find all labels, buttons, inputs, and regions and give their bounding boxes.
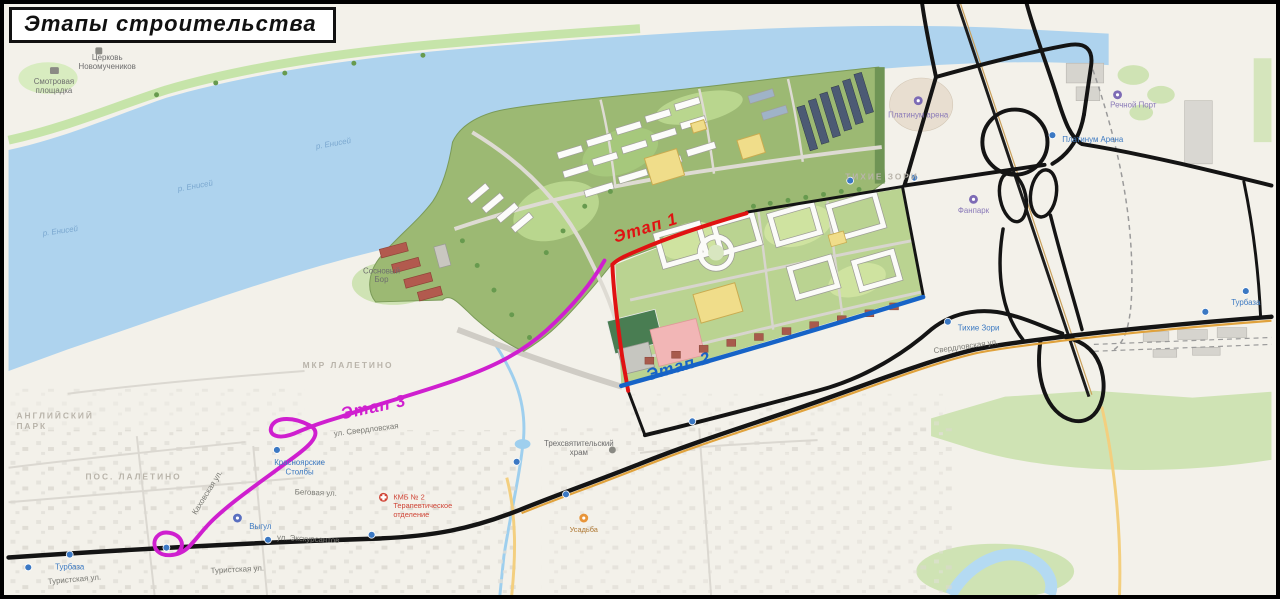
vygul-poi-icon <box>233 514 242 523</box>
transit-stop-icon <box>1049 132 1056 139</box>
transit-stop-icon <box>513 458 520 465</box>
stolby-stop-label: Красноярские <box>274 458 325 467</box>
arena-poi-label: Платинум арена <box>888 110 949 119</box>
transit-stop-icon <box>25 564 32 571</box>
rechnoy-port-poi-icon <box>1113 90 1122 99</box>
transit-stop-icon <box>265 536 272 543</box>
street-label-begovaya: Беговая ул. <box>295 487 337 497</box>
map-frame: Этапы строительства <box>0 0 1280 599</box>
viewpoint-poi-icon <box>50 67 59 74</box>
sosnovy-label: Бор <box>375 275 390 284</box>
church-label: Церковь <box>92 53 123 62</box>
transit-stop-icon <box>563 491 570 498</box>
viewpoint-label: площадка <box>36 86 73 95</box>
district-label-mkr-laletino: МКР ЛАЛЕТИНО <box>303 360 394 370</box>
temple-label: Трехсвятительский <box>544 439 614 448</box>
stolby-stop-label: Столбы <box>286 468 315 477</box>
transit-stop-icon <box>368 531 375 538</box>
transit-stop-icon <box>66 551 73 558</box>
church-label: Новомучеников <box>79 62 136 71</box>
hospital-poi-icon <box>379 493 388 502</box>
transit-stop-icon <box>944 318 951 325</box>
fanpark-poi-icon <box>969 195 978 204</box>
vygul-label: Выгул <box>249 522 272 531</box>
district-label-english-park: ПАРК <box>16 421 47 431</box>
fanpark-label: Фанпарк <box>958 206 990 215</box>
usadba-label: Усадьба <box>570 525 599 534</box>
district-label-pos-laletino: ПОС. ЛАЛЕТИНО <box>86 472 182 482</box>
transit-stop-icon <box>1202 308 1209 315</box>
map-title: Этапы строительства <box>24 11 317 36</box>
hospital-label: Терапевтическое <box>393 501 452 510</box>
transit-stop-icon <box>273 447 280 454</box>
viewpoint-label: Смотровая <box>34 77 74 86</box>
transit-stop-icon <box>1242 288 1249 295</box>
rechnoy-port-label: Речной Порт <box>1110 101 1157 110</box>
green-patch <box>1254 58 1272 142</box>
hospital-label: отделение <box>393 510 429 519</box>
stage3-label: Этап 3 <box>339 391 408 423</box>
district-label-english-park: АНГЛИЙСКИЙ <box>16 409 93 420</box>
arena-stop-label: Платинум Арена <box>1062 135 1124 144</box>
courtyard <box>708 245 724 261</box>
transit-stop-icon <box>163 544 170 551</box>
district-label-tikhie-zori: ТИХИЕ ЗОРИ <box>845 172 919 182</box>
turbaza-right-label: Турбаза <box>1231 298 1261 307</box>
map-title-box: Этапы строительства <box>9 7 336 43</box>
arena-poi-icon <box>914 96 923 105</box>
map-canvas: Этап 1 Этап 2 Этап 3 <box>4 4 1276 595</box>
tikhie-zori-stop-label: Тихие Зори <box>958 324 1000 333</box>
transit-stop-icon <box>689 418 696 425</box>
hospital-label: КМБ № 2 <box>393 492 424 501</box>
city-buildings <box>890 63 1247 357</box>
green-patch <box>1118 65 1150 85</box>
temple-label: храм <box>570 448 588 457</box>
usadba-poi-icon <box>579 514 588 523</box>
turbaza-label: Турбаза <box>55 562 85 571</box>
sosnovy-label: Сосновый <box>363 266 400 275</box>
